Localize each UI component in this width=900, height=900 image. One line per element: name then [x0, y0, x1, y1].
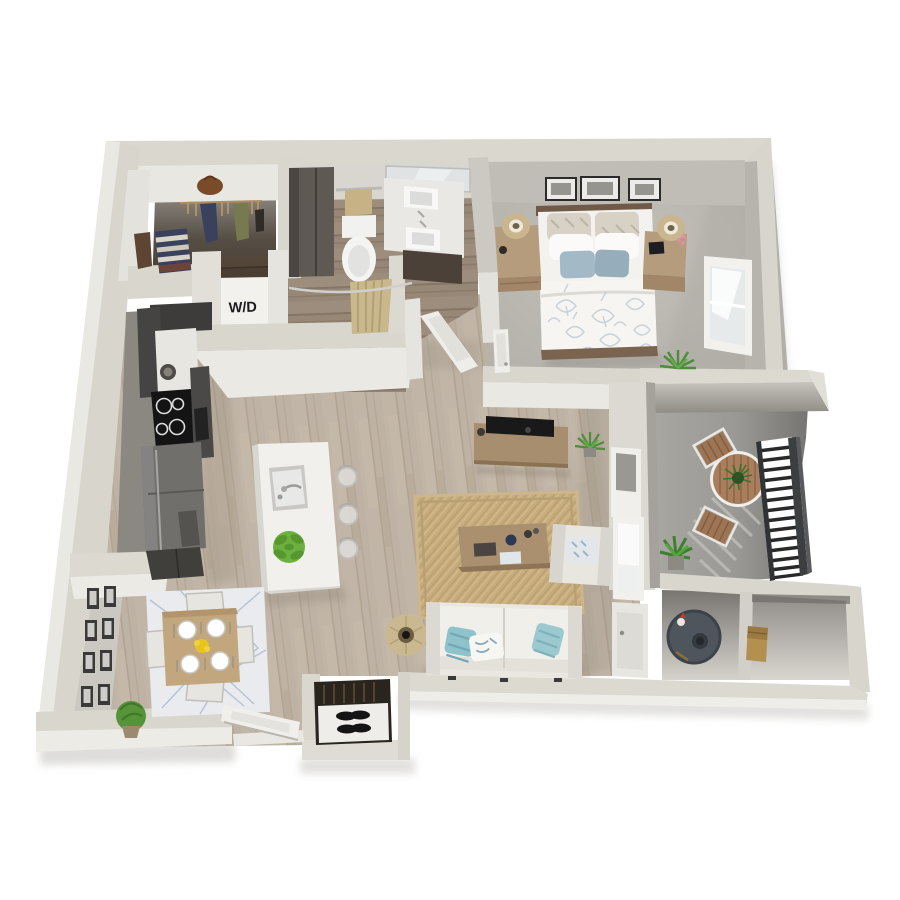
- svg-text:W/D: W/D: [228, 300, 257, 317]
